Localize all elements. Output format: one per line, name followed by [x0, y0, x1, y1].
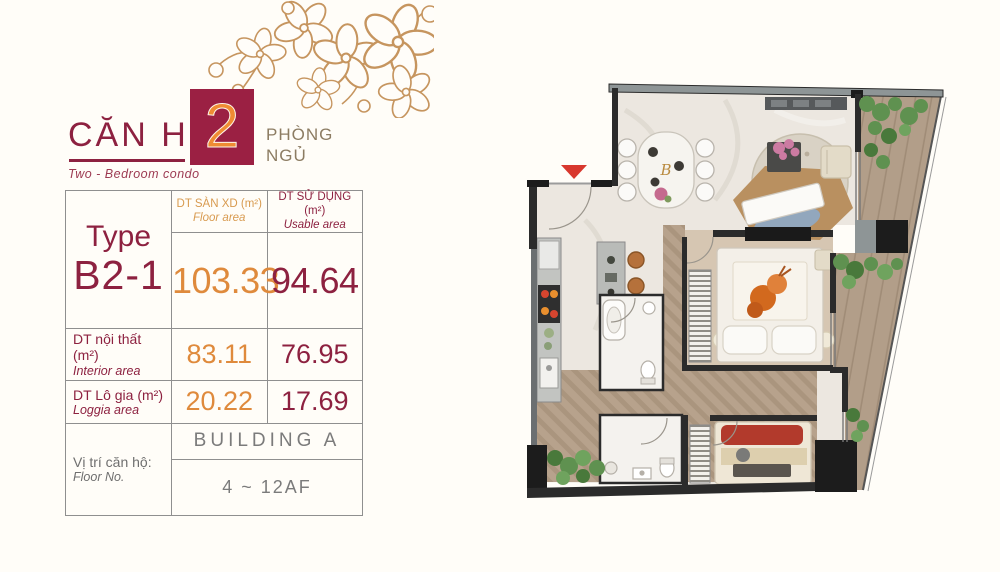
- bathroom-1: [600, 295, 663, 390]
- unit-type-cell: Type B2-1: [66, 191, 172, 329]
- dining-table-set: B: [618, 132, 714, 208]
- main-usable-area-value: 94.64: [267, 233, 363, 329]
- usable-area-header: DT SỬ DỤNG (m²) Usable area: [267, 191, 363, 233]
- red-pillow: [721, 425, 803, 445]
- bedroom-count-number: 2: [205, 96, 239, 158]
- wardrobe: [690, 425, 710, 483]
- interior-usable-value: 76.95: [267, 329, 363, 381]
- type-value: B2-1: [66, 253, 171, 298]
- bedroom-2: [690, 422, 811, 484]
- bathroom-2: [600, 415, 682, 483]
- location-label: Vị trí căn hộ: Floor No.: [66, 423, 172, 515]
- loggia-floor-value: 20.22: [172, 380, 268, 423]
- title-underline: [69, 159, 185, 162]
- bar-stool: [628, 278, 644, 294]
- page-subtitle-english: Two - Bedroom condo: [68, 167, 200, 181]
- unit-spec-table: Type B2-1 DT SÀN XD (m²) Floor area DT S…: [65, 190, 363, 516]
- floor-plan: B: [515, 70, 980, 542]
- main-floor-area-value: 103.33: [172, 233, 268, 329]
- loggia-usable-value: 17.69: [267, 380, 363, 423]
- entry-arrow: [561, 165, 587, 179]
- interior-floor-value: 83.11: [172, 329, 268, 381]
- bedroom-count-badge: 2: [190, 89, 254, 165]
- type-label: Type: [66, 221, 171, 253]
- dining-table-monogram: B: [659, 161, 671, 179]
- wardrobe: [689, 270, 711, 362]
- interior-area-label: DT nội thất (m²) Interior area: [66, 329, 172, 381]
- loggia-area-label: DT Lô gia (m²) Loggia area: [66, 380, 172, 423]
- page-title-suffix: PHÒNG NGỦ: [266, 124, 333, 167]
- bar-stool: [628, 252, 644, 268]
- floor-area-header: DT SÀN XD (m²) Floor area: [172, 191, 268, 233]
- building-value: BUILDING A: [172, 423, 363, 459]
- floor-range-value: 4 ~ 12AF: [172, 459, 363, 515]
- brochure-page: { "title": { "vi": "CĂN HỘ", "number": "…: [0, 0, 1000, 572]
